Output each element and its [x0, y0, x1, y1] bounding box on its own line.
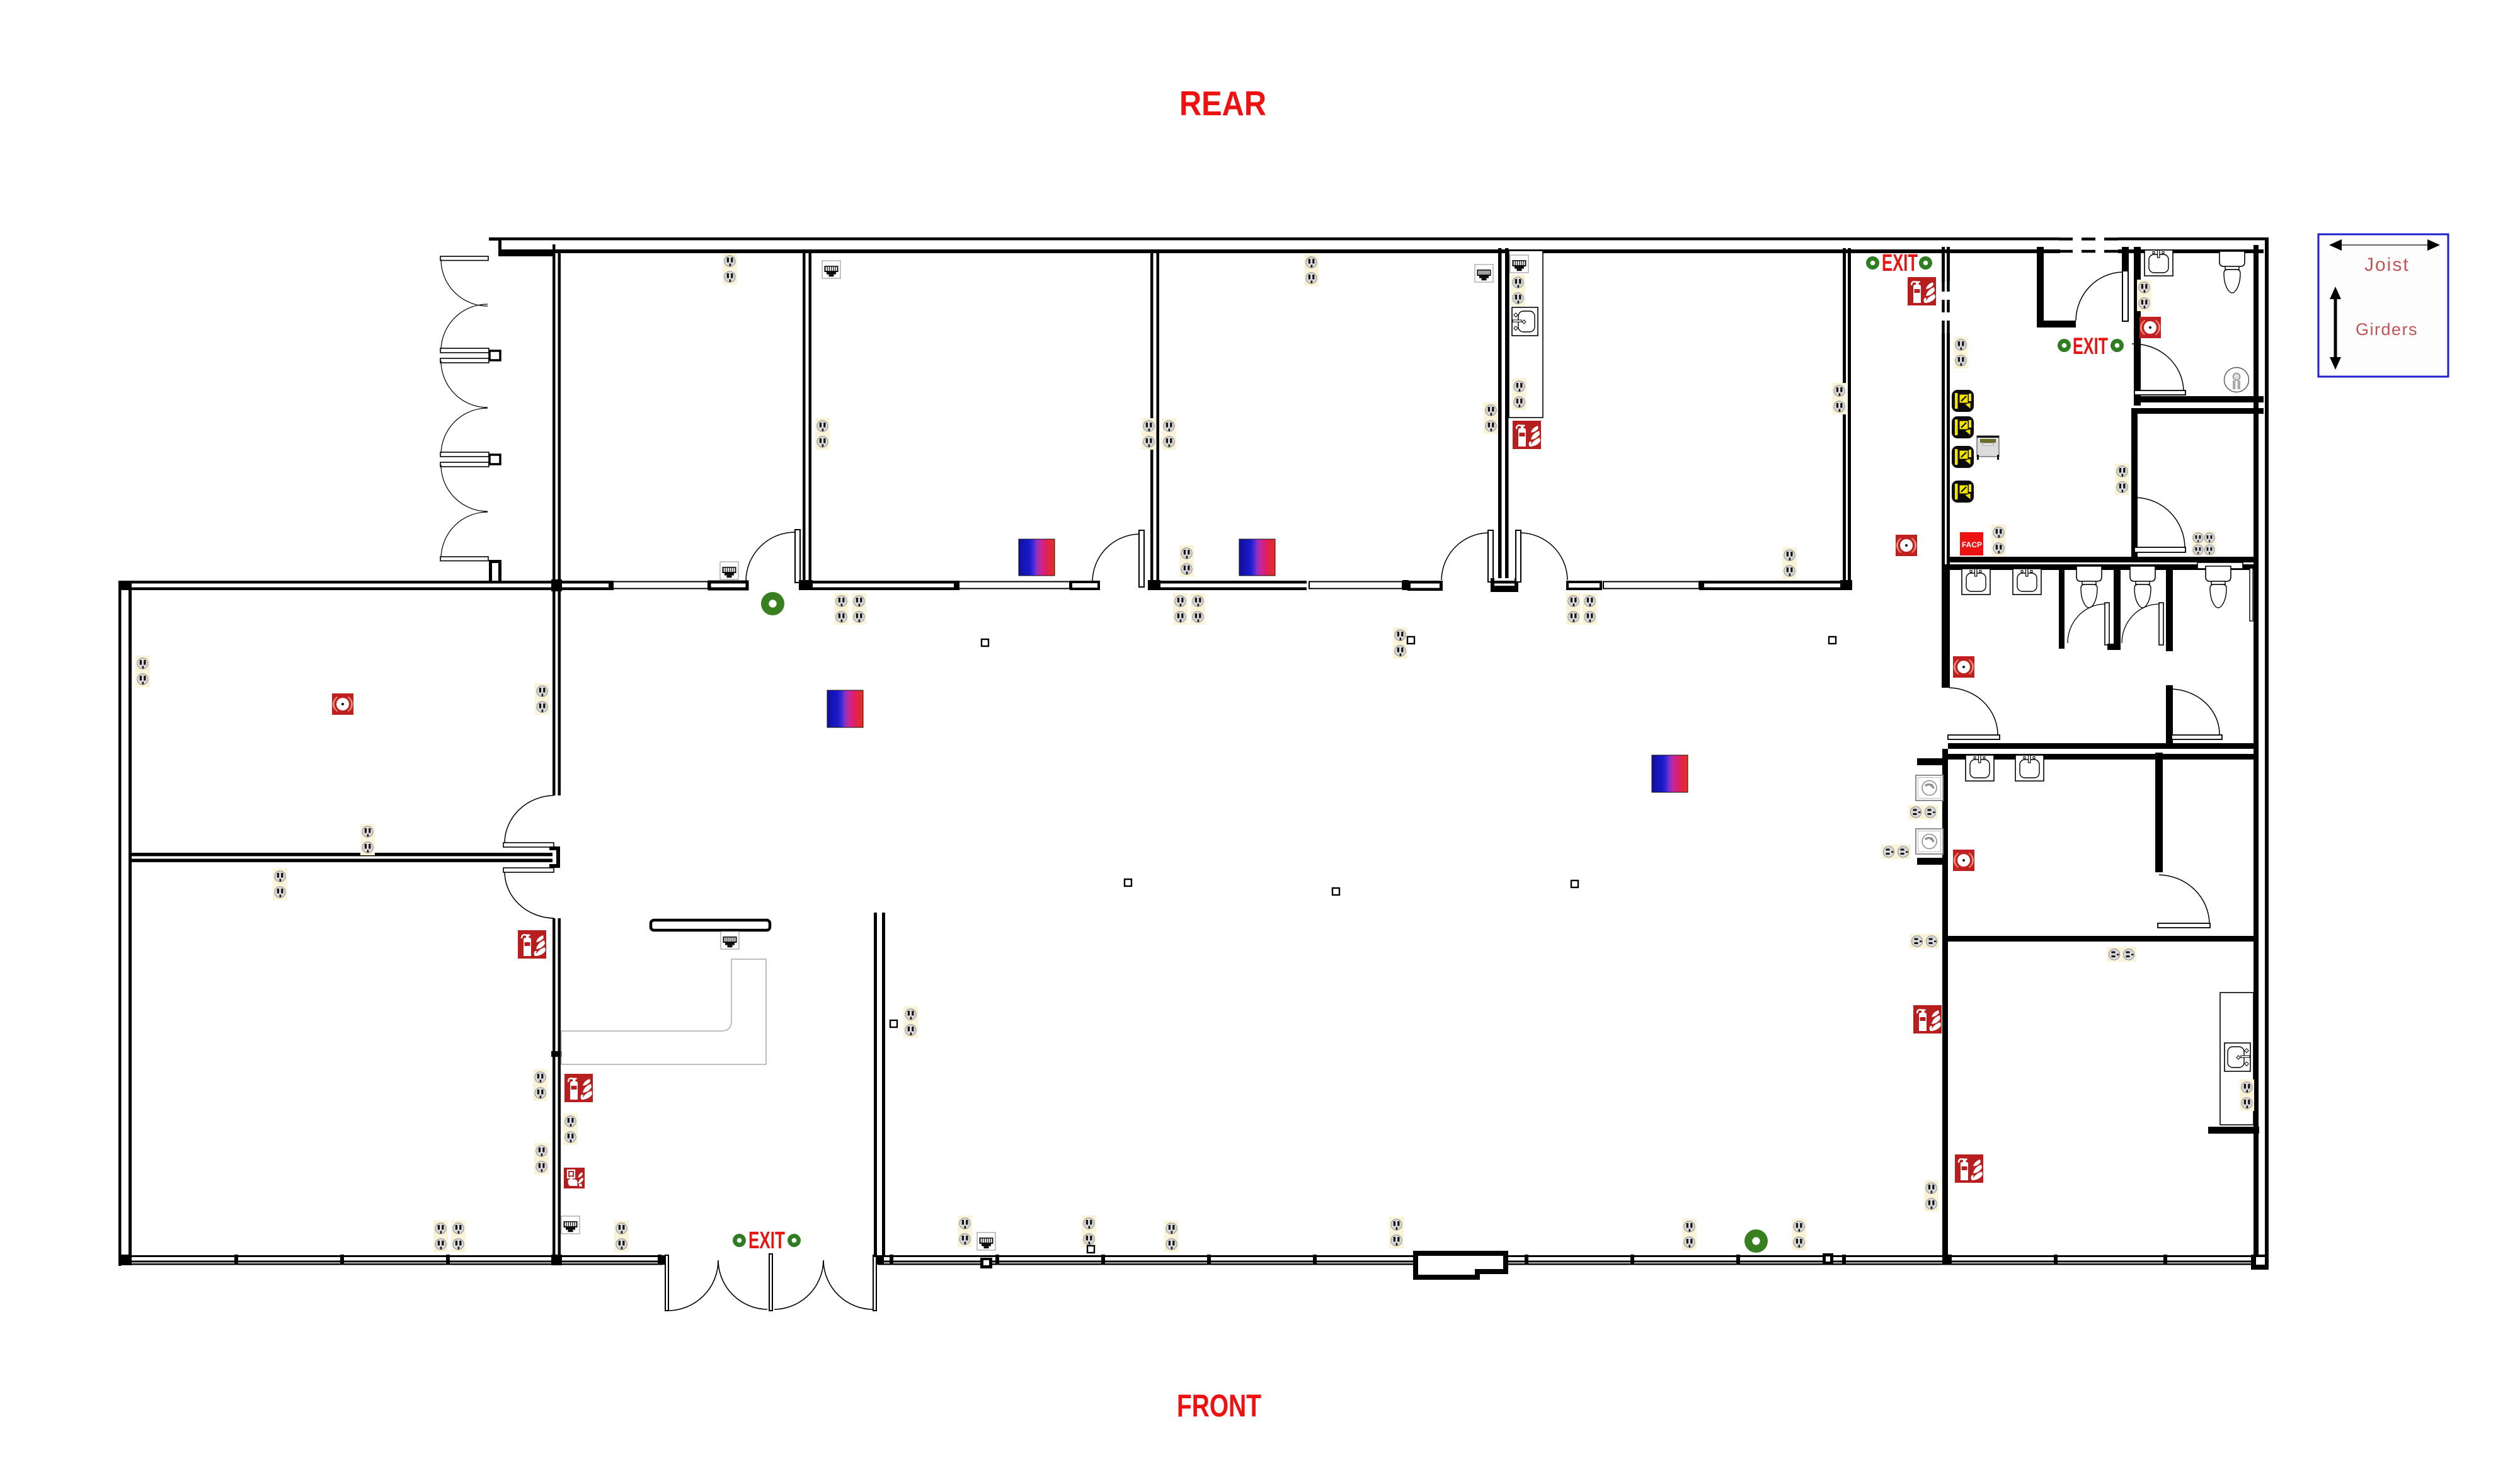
- svg-text:Girders: Girders: [2356, 320, 2418, 339]
- svg-text:EXIT: EXIT: [748, 1227, 785, 1254]
- svg-text:Joist: Joist: [2364, 254, 2410, 275]
- svg-text:REAR: REAR: [1179, 84, 1266, 123]
- svg-text:FACP: FACP: [1962, 540, 1982, 549]
- svg-text:EXIT: EXIT: [1882, 250, 1918, 276]
- svg-text:EXIT: EXIT: [2073, 333, 2108, 359]
- svg-text:FRONT: FRONT: [1177, 1388, 1261, 1423]
